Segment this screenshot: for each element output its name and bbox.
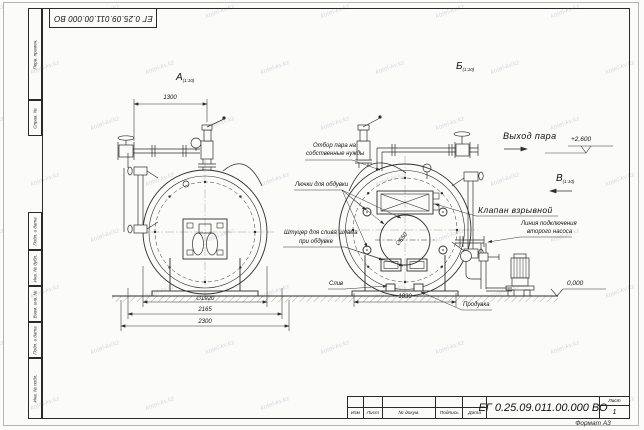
- title-block: Изм Лист № докум. Подпись Дата ЕГ 0.25.0…: [347, 396, 630, 419]
- steam-outlet-label: Выход пара: [503, 131, 556, 141]
- own-needs-label-line2: собственные нужды: [306, 151, 364, 157]
- pump-line-label-line1: Линия подключения: [521, 221, 577, 227]
- elevation-top-label: +2,600: [571, 136, 591, 143]
- col-docnum: № докум.: [383, 408, 437, 418]
- col-list: Лист: [364, 408, 383, 418]
- drawing-sheet: kotel-kv.kzkotel-kv.kzkotel-kv.kzkotel-k…: [0, 0, 644, 430]
- own-needs-label-line1: Отбор пара на: [313, 143, 356, 149]
- title-block-revision-table: Изм Лист № докум. Подпись Дата: [348, 397, 487, 418]
- frame-cell-podp-data-1: Подп. и дата: [28, 212, 42, 250]
- elevation-zero-label: 0,000: [567, 280, 583, 287]
- frame-cell-inv-dubl: Инв. № дубл.: [28, 250, 42, 286]
- frame-cell-sprav-no: Справ. №: [28, 100, 42, 136]
- frame-cell-inv-podl: Инв. № подл.: [28, 358, 42, 419]
- frame-cell-vzam-inv: Взам. инв. №: [28, 286, 42, 322]
- dim-2165: 2165: [183, 307, 227, 313]
- revision-header-row: Изм Лист № докум. Подпись Дата: [348, 407, 486, 418]
- revision-empty-row: [348, 397, 486, 407]
- sheet-cell: Лист 1: [599, 397, 629, 418]
- blow-hatches-label: Лючки для обдувки: [295, 182, 348, 188]
- doc-number: ЕГ 0.25.09.011.00.000 ВО: [487, 397, 599, 418]
- dim-1300: 1300: [148, 95, 192, 101]
- sludge-label-line1: Штуцер для слива шлама: [284, 230, 358, 236]
- format-note: Формат А3: [558, 420, 628, 427]
- sheet-label: Лист: [600, 397, 629, 406]
- dim-1830: 1830: [383, 294, 427, 300]
- dim-2300: 2300: [183, 319, 227, 325]
- col-izm: Изм: [348, 408, 364, 418]
- dim-diameter-1920: ∅1920: [183, 295, 227, 302]
- pump-line-label-line2: второго насоса: [527, 229, 572, 235]
- blowdown-label: Продувка: [463, 302, 490, 308]
- frame-cell-podp-data-2: Подп. и дата: [28, 322, 42, 358]
- explosion-valve-label: Клапан взрывной: [478, 205, 553, 215]
- drain-label: Слив: [329, 281, 343, 287]
- frame-cell-perv-primen: Перв. примен.: [28, 8, 42, 100]
- col-podpis: Подпись: [436, 408, 463, 418]
- view-label-v: В(1:10): [556, 173, 574, 184]
- inverted-doc-number-stamp: ЕГ 0.25.09.011.00.000 ВО: [49, 8, 157, 28]
- view-label-b: Б(1:10): [456, 61, 474, 72]
- view-label-a: А(1:10): [176, 72, 194, 83]
- sludge-label-line2: при обдувке: [299, 239, 333, 245]
- inverted-doc-number: ЕГ 0.25.09.011.00.000 ВО: [54, 14, 153, 23]
- sheet-number: 1: [600, 406, 629, 418]
